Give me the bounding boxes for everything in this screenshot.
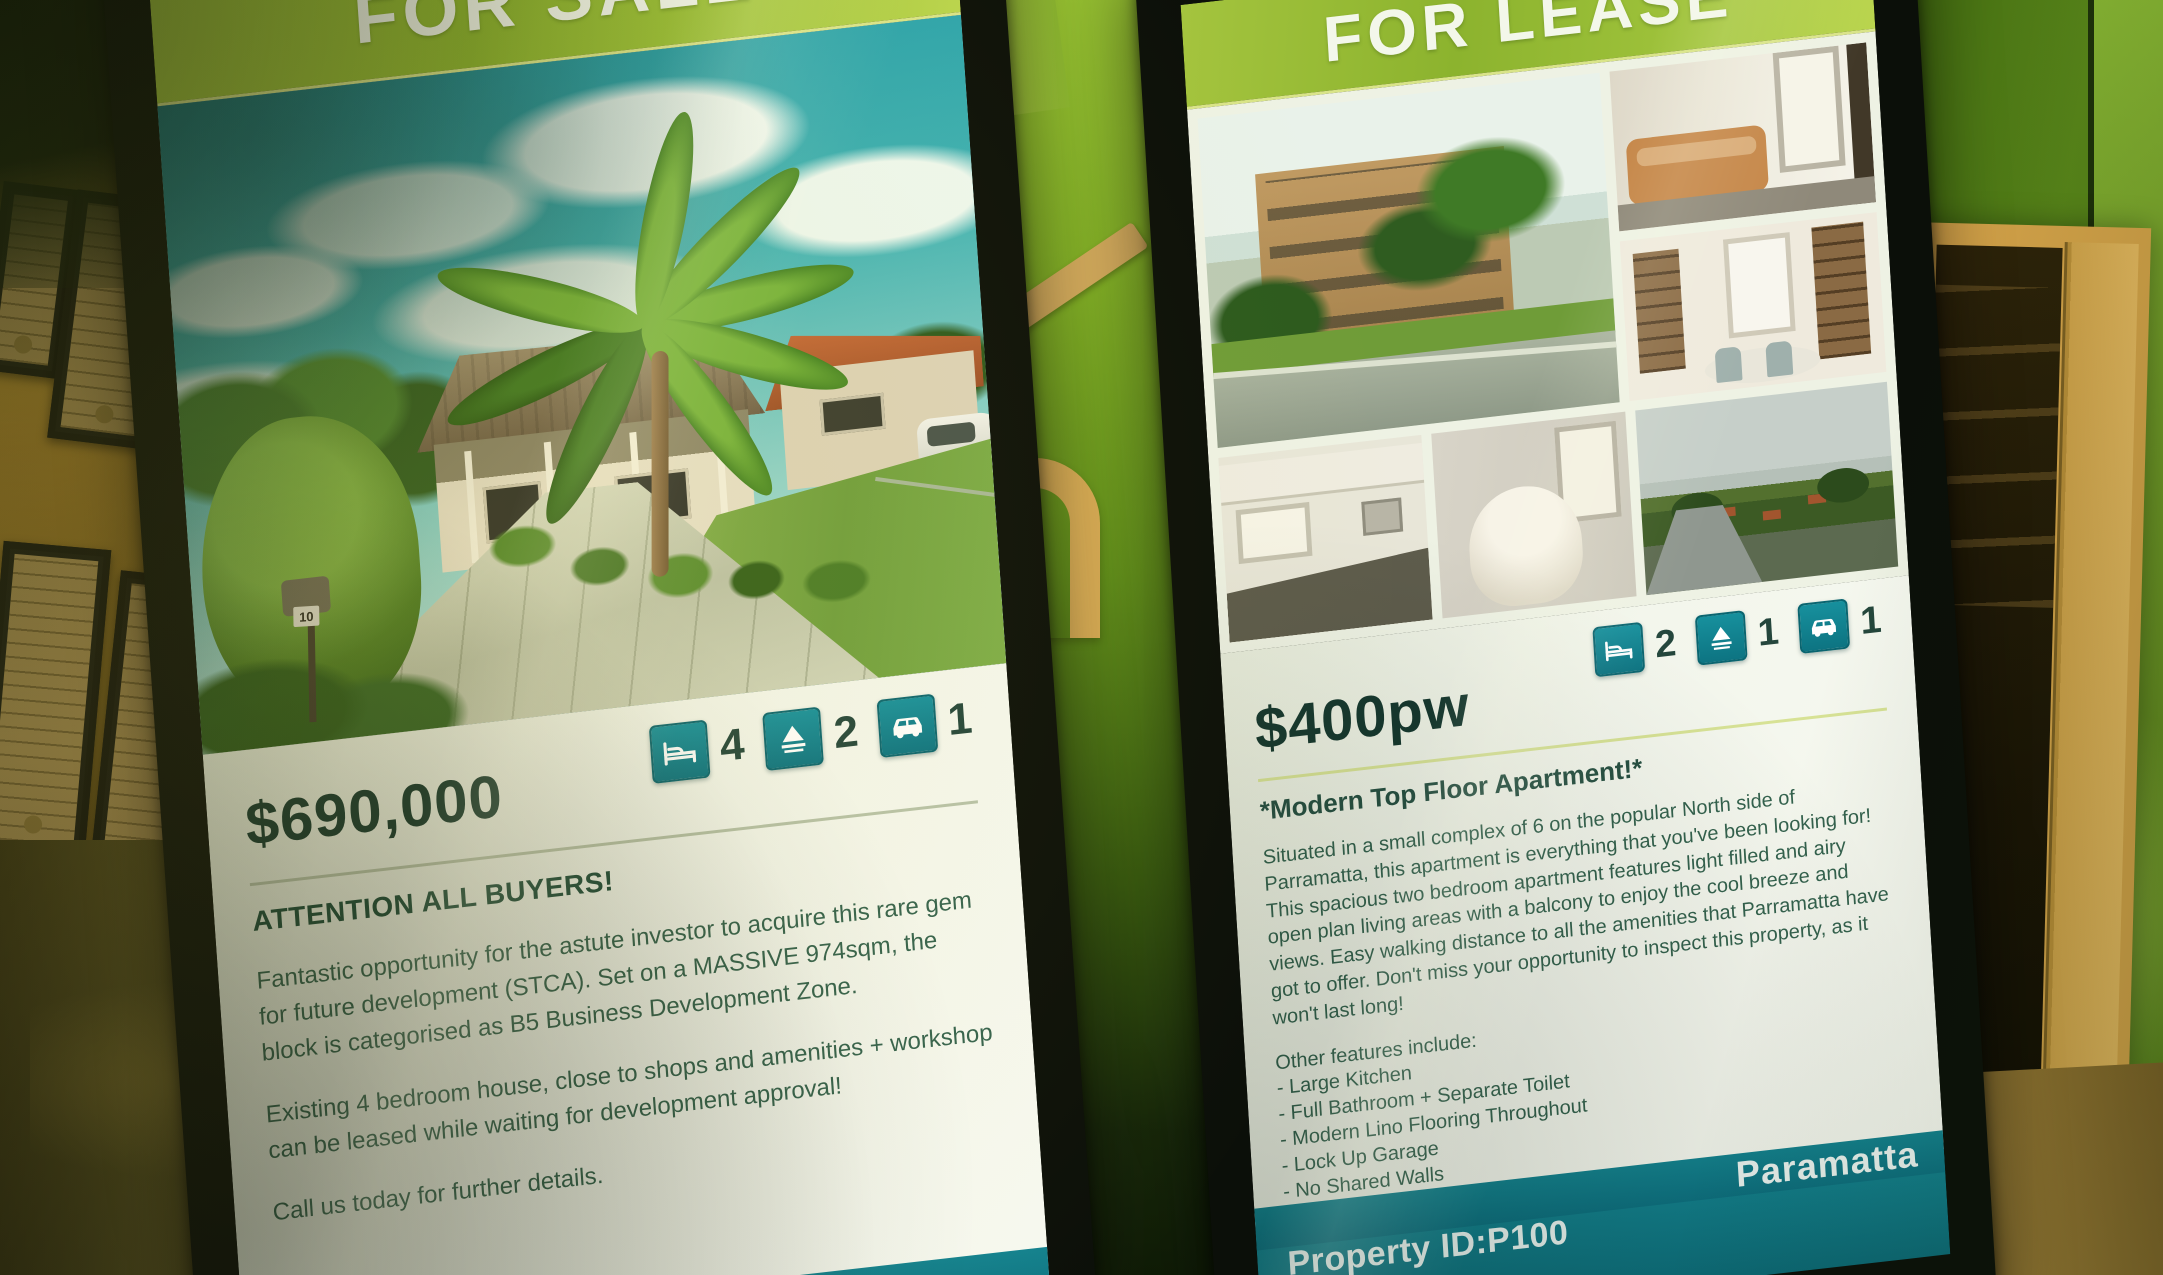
photo-color-cast: [157, 15, 1006, 755]
dining-room-photo: [1620, 212, 1886, 401]
bath-icon: [1695, 610, 1748, 666]
doorway: [1723, 232, 1796, 339]
parking-count: 1: [946, 693, 974, 746]
certificate-paper: [0, 554, 98, 846]
parking-count: 1: [1859, 598, 1883, 643]
road: [1642, 501, 1763, 595]
bookshelf: [1811, 222, 1871, 360]
palm-trees: [1349, 115, 1588, 301]
bed-icon: [1592, 622, 1645, 678]
cabinets: [1219, 443, 1425, 506]
listing-card: $400pw 2: [1220, 575, 1944, 1227]
property-stats: 4 2: [628, 689, 974, 786]
car-icon: [876, 694, 938, 758]
bedrooms-count: 4: [718, 719, 746, 772]
window: [1236, 502, 1313, 564]
bedrooms-stat: 4: [648, 715, 746, 784]
chair: [1714, 346, 1742, 383]
apartment-exterior-photo: [1198, 73, 1620, 448]
bedrooms-count: 2: [1654, 622, 1678, 667]
bathrooms-count: 1: [1756, 610, 1780, 655]
parking-stat: 1: [876, 689, 974, 758]
bathrooms-stat: 1: [1695, 606, 1781, 665]
car-icon: [1797, 598, 1850, 654]
property-stats: 2 1: [1572, 595, 1883, 680]
rooftop: [1763, 509, 1781, 520]
appliance: [1362, 497, 1404, 535]
house-photo: 10: [157, 15, 1006, 755]
chair: [1766, 340, 1794, 377]
sale-price: $690,000: [243, 761, 505, 859]
bath-icon: [762, 707, 824, 771]
bedrooms-stat: 2: [1592, 618, 1678, 677]
shop-window-photo: FOR SALE: [0, 0, 2163, 1275]
apartment-photo-collage: [1187, 31, 1909, 653]
kitchen-photo: [1218, 435, 1433, 643]
for-sale-display: FOR SALE: [100, 0, 1097, 1275]
bed-icon: [648, 720, 710, 784]
bookshelf: [1633, 249, 1686, 374]
parking-stat: 1: [1797, 595, 1883, 654]
bathrooms-count: 2: [832, 706, 860, 759]
living-room-photo: [1609, 42, 1875, 231]
suburb-view-photo: [1635, 382, 1898, 595]
bedroom-photo: [1432, 412, 1637, 619]
window: [1773, 46, 1846, 173]
for-lease-display: FOR LEASE: [1135, 0, 1998, 1275]
lease-price: $400pw: [1253, 672, 1472, 763]
bathrooms-stat: 2: [762, 702, 860, 771]
listing-card: $690,000 4: [203, 663, 1052, 1275]
